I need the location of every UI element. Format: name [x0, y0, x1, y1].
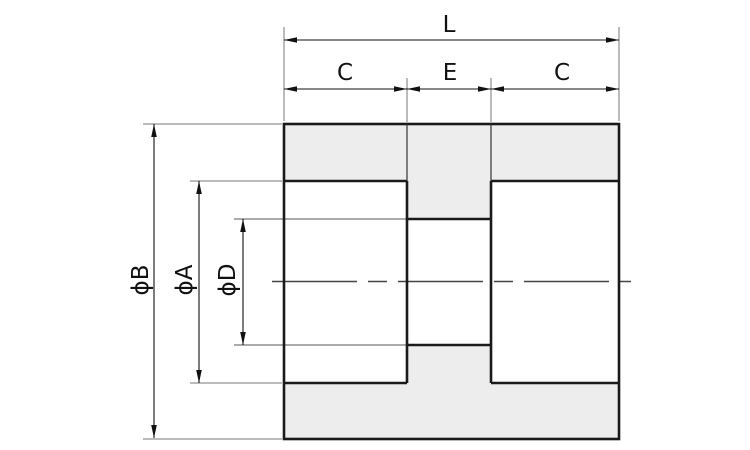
label-phiA: ϕA [172, 264, 198, 295]
upper-section-fill [284, 124, 619, 219]
label-phiD: ϕD [215, 264, 241, 297]
lower-section-fill [284, 345, 619, 439]
arrow-E-left [407, 86, 420, 92]
arrow-L-left [284, 37, 297, 43]
label-L: L [443, 12, 456, 38]
label-C-left: C [337, 60, 353, 86]
dimension-lines [154, 40, 619, 438]
label-E: E [443, 60, 458, 86]
arrow-phiD-bottom [240, 332, 246, 345]
arrow-C-left-outer [284, 86, 297, 92]
arrow-C-left-inner [394, 86, 407, 92]
arrow-phiA-bottom [196, 370, 202, 383]
arrow-phiA-top [196, 181, 202, 194]
arrow-phiB-bottom [151, 425, 157, 438]
label-C-right: C [554, 60, 570, 86]
arrow-C-right-outer [606, 86, 619, 92]
arrow-C-right-inner [491, 86, 504, 92]
drawing-canvas: L C E C ϕB ϕA ϕD [0, 0, 750, 450]
arrow-phiD-top [240, 219, 246, 232]
label-phiB: ϕB [128, 265, 154, 296]
dimension-arrowheads [151, 37, 619, 438]
spacer-section-drawing: L C E C ϕB ϕA ϕD [0, 0, 750, 450]
arrow-E-right [478, 86, 491, 92]
arrow-phiB-top [151, 124, 157, 137]
arrow-L-right [606, 37, 619, 43]
